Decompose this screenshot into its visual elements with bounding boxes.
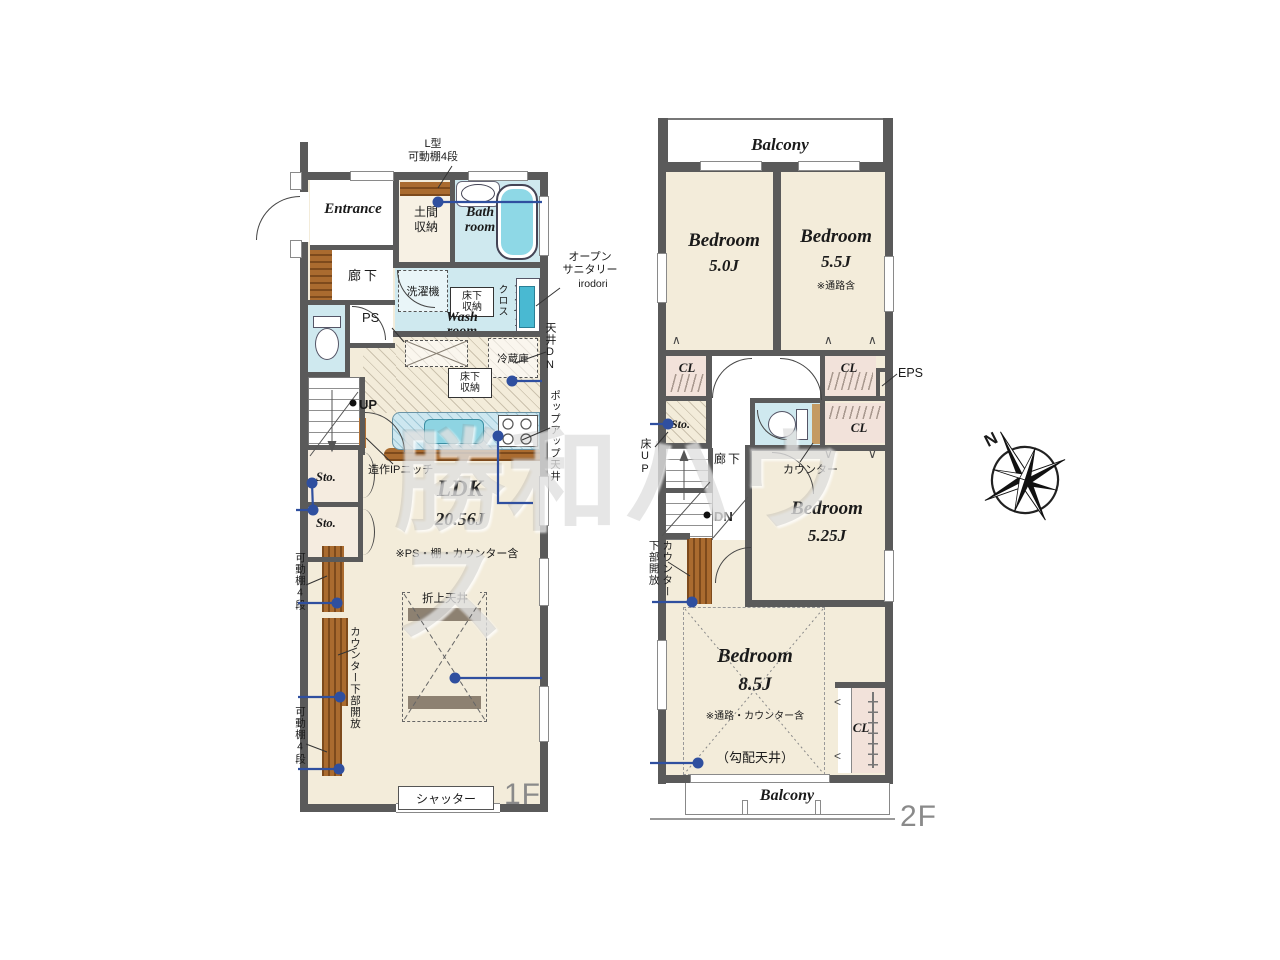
1f-open-sanitary-label: オープン サニタリー [550,250,630,278]
closet-fold-mark: < [834,750,841,762]
2f-balcony-bottom-label: Balcony [742,786,832,806]
2f-stairs [660,448,713,540]
wall [708,448,713,493]
closet-fold-mark: ∧ [868,334,877,346]
1f-ldk-size: 20.56J [415,508,505,530]
2f-bedroom525-label: Bedroom [772,498,882,520]
2f-toilet-counter [812,404,820,444]
window [884,550,894,602]
1f-doma-shelf [400,182,450,196]
1f-ceiling-beam-top [408,608,481,621]
1f-hall-steps [310,250,332,305]
2f-bedroom85-label: Bedroom [700,644,810,668]
door-jamb [290,240,302,258]
entrance-door-arc [256,196,300,240]
2f-toilet-tank [796,409,808,440]
1f-up-label: UP [359,396,377,414]
1f-shutter-box: シャッター [398,786,494,810]
wall [393,331,540,337]
1f-doma-storage-label: 土間 収納 [406,202,446,238]
floor-plan-canvas: 洗濯機 床下 収納 Wash room アクセント クロス 冷蔵庫 床下 収納 [0,0,1280,960]
1f-underfloor-storage-kitchen: 床下 収納 [448,368,492,398]
1f-entrance-label: Entrance [314,200,392,218]
wall [300,142,308,172]
wall [310,245,394,250]
wall [308,557,363,562]
2f-bedroom55-note: ※通路含 [796,278,876,290]
1f-coffered-ceiling-label: 折上天井 [410,591,480,605]
wall [820,400,825,448]
1f-counter-shelf [322,618,348,706]
1f-ceiling-beam-bottom [408,696,481,709]
wall [662,443,712,448]
wall [308,372,350,377]
1f-floor-label: 1F [504,778,541,812]
2f-bedroom50-size: 5.0J [676,256,772,276]
1f-open-sanitary-sub: irodori [566,278,620,290]
1f-ps-label: PS [362,309,379,327]
2f-cl2-label: CL [834,360,864,376]
closet-fold-mark: ∧ [824,334,833,346]
window [657,640,667,710]
closet-fold-mark: ∧ [672,334,681,346]
1f-storage2-label: Sto. [316,514,336,532]
window [539,558,549,606]
window [657,253,667,303]
2f-storage-label: Sto. [671,415,690,433]
wall [823,396,893,401]
closet-fold-mark: ∨ [824,448,833,460]
1f-popup-ceiling-label: ポップアップ天井 [548,390,563,520]
1f-kitchen-sink [424,419,484,444]
2f-floor-up-label: 床UP [637,438,653,482]
1f-hallway-label: 廊下 [342,266,386,282]
1f-refrigerator: 冷蔵庫 [488,338,538,378]
closet-hanger-marks [827,406,881,419]
1f-movable-shelf-lower-label: 可動棚4段 [293,706,308,782]
2f-eps-label: EPS [898,364,923,382]
refrigerator-label: 冷蔵庫 [497,351,529,366]
door-jamb [290,172,302,190]
2f-balcony-top-label: Balcony [735,134,825,156]
window [539,686,549,742]
wall [658,118,668,168]
2f-sloped-ceiling-label: （勾配天井） [700,748,810,764]
window [690,774,830,783]
1f-toilet-tank [313,316,341,328]
1f-bath-room-label: Bath room [456,204,504,238]
1f-bath-sink [461,184,495,203]
1f-l-shelf-note: L型 可動棚4段 [396,136,470,166]
1f-movable-shelf-upper-label: 可動棚4段 [293,552,308,628]
wall [308,502,363,507]
1f-ldk-note: ※PS・棚・カウンター含 [372,546,542,560]
wall [706,350,712,448]
closet-hanger-marks [670,374,704,392]
wall [883,118,893,168]
2f-cl4-label: CL [846,720,876,736]
closet-fold-mark: < [834,696,841,708]
wall [660,488,713,493]
1f-storage1-label: Sto. [316,468,336,486]
1f-stove [498,415,538,447]
window [798,161,860,171]
2f-hallway-label: 廊下 [714,450,742,468]
wall [450,178,455,268]
2f-dn-label: DN [714,508,733,526]
2f-counter-shelf [687,538,712,604]
2f-bedroom85-note: ※通路・カウンター含 [690,708,820,720]
1f-toilet-bowl [315,328,339,360]
base-line [650,818,895,820]
1f-counter-open-label: カウンター下部開放 [348,626,363,730]
window [700,161,762,171]
1f-ldk-label: LDK [415,476,505,502]
wall [750,398,755,450]
closet-fold-mark: ∨ [868,448,877,460]
wall [666,350,893,356]
1f-entrance-opening [299,192,309,242]
2f-bedroom55-size: 5.5J [788,252,884,272]
1f-sanitary-unit [519,286,535,328]
window [350,171,394,181]
wall [876,368,880,400]
wall [345,300,350,377]
wall [658,533,690,539]
2f-counter-open-label: カウンター 下部開放 [646,540,673,606]
2f-cl1-label: CL [672,360,702,376]
1f-ceiling-down-label: 天井DN [542,322,558,382]
2f-floor-label: 2F [900,800,937,834]
1f-pantry [405,340,468,367]
2f-bedroom525-size: 5.25J [772,526,882,546]
1f-movable-shelf-upper [322,546,344,612]
window [539,196,549,256]
2f-counter-label: カウンター [783,460,838,478]
wall [773,172,781,352]
2f-bedroom50-label: Bedroom [676,230,772,252]
2f-cl3-label: CL [844,420,874,436]
2f-bedroom55-label: Bedroom [788,226,884,248]
2f-bedroom85-size: 8.5J [700,674,810,696]
wall [835,682,893,688]
wall [393,172,399,268]
1f-bathtub-water [501,189,533,255]
wall [308,445,363,450]
wall [666,396,711,401]
window [884,256,894,312]
1f-movable-shelf-lower [322,702,342,776]
wall [395,262,540,268]
wall [348,343,395,348]
wall [308,300,395,305]
wall [752,600,893,607]
window [468,171,528,181]
